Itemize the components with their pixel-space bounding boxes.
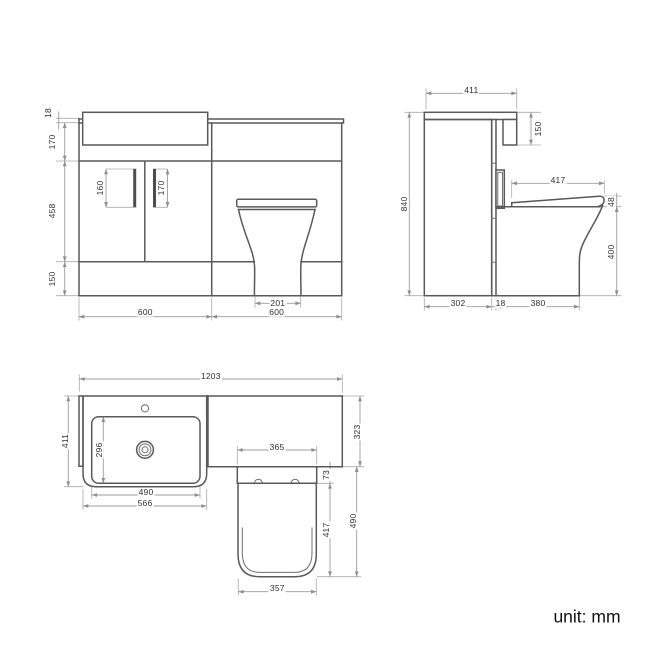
plan-dim-total-width: 1203: [200, 371, 222, 380]
side-dim-pan-height: 400: [607, 243, 616, 260]
side-dim-pan-projection: 380: [530, 299, 547, 308]
plan-dim-seat-width: 357: [269, 584, 286, 593]
front-dim-apron-height: 170: [47, 134, 56, 151]
front-dim-plinth-height: 150: [47, 271, 56, 288]
side-view-drawing: [405, 89, 622, 311]
front-dim-left-handle: 160: [95, 180, 104, 197]
front-dim-worktop-edge: 18: [43, 107, 52, 119]
side-dim-total-height: 840: [400, 196, 409, 213]
side-cabinet: [424, 120, 491, 296]
front-dim-pan-base-width: 201: [269, 299, 286, 308]
tap-hole: [141, 405, 148, 412]
plan-toilet: [237, 467, 316, 577]
side-dim-seat-length: 417: [550, 175, 567, 184]
front-dim-wc-width: 600: [268, 308, 285, 317]
plan-dim-pan-projection: 490: [349, 513, 358, 530]
front-basin: [83, 112, 208, 145]
side-toilet: [492, 196, 604, 295]
side-door-handle: [496, 170, 504, 208]
plan-dim-bowl-width: 490: [138, 487, 155, 496]
front-toilet: [237, 199, 317, 295]
front-view-drawing: [56, 112, 344, 321]
front-left-door-handle: [133, 169, 136, 208]
side-worktop: [424, 112, 516, 119]
plan-dim-recess-width: 365: [269, 443, 286, 452]
plan-dim-seat-length: 417: [322, 522, 331, 539]
front-dim-right-handle: 170: [157, 180, 166, 197]
side-dim-cabinet-depth: 302: [450, 299, 467, 308]
plan-dim-bowl-depth: 296: [95, 442, 104, 459]
side-dim-seat-thickness: 48: [607, 196, 616, 208]
technical-drawing-page: 18 170 458 150 160 170 201 600 600 411 1…: [0, 0, 650, 650]
plan-dim-wc-top-depth: 323: [352, 423, 361, 440]
side-dim-panel-thickness: 18: [495, 299, 507, 308]
side-dim-worktop-depth: 411: [463, 85, 479, 94]
plan-dim-basin-width: 566: [137, 499, 154, 508]
plan-dim-basin-depth: 411: [60, 433, 69, 449]
unit-label: unit: mm: [553, 606, 620, 627]
plan-dim-seat-setback: 73: [322, 469, 331, 481]
side-dim-worktop-drop: 150: [533, 120, 542, 137]
side-worktop-drop: [503, 120, 517, 146]
front-dim-door-height: 458: [47, 203, 56, 220]
plan-view-drawing: [64, 375, 365, 596]
drawing-linework: [0, 0, 650, 650]
front-dim-vanity-width: 600: [137, 308, 154, 317]
